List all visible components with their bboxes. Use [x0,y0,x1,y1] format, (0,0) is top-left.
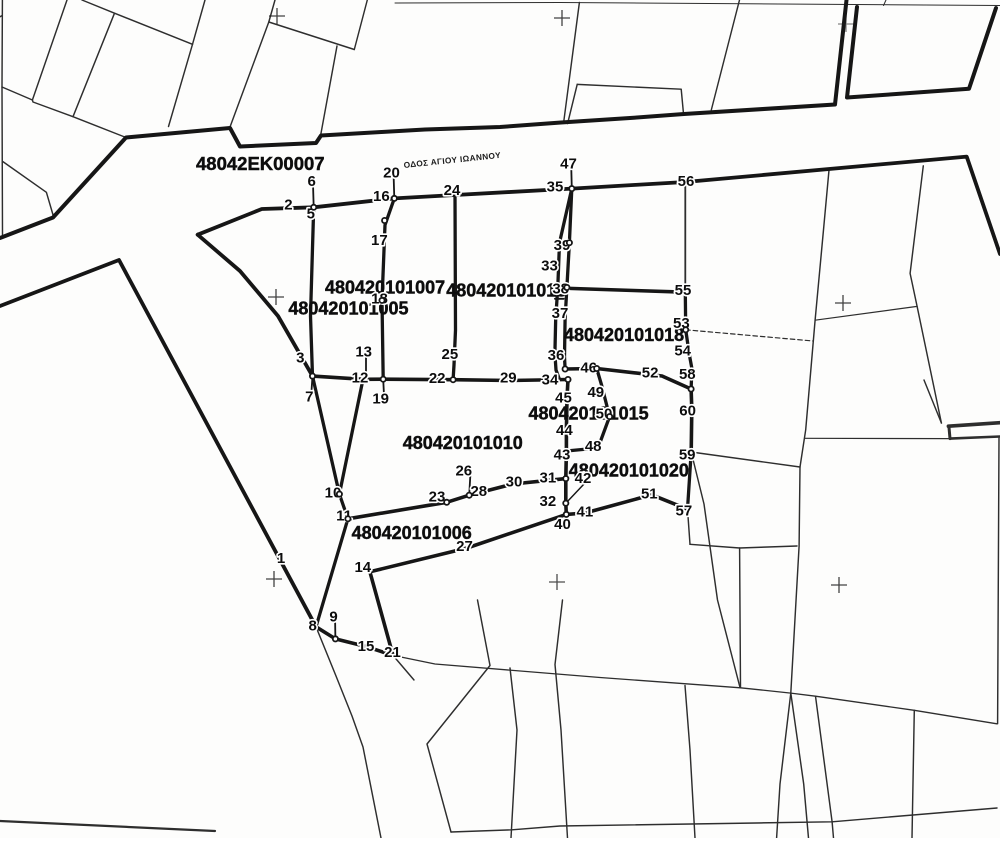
svg-text:3: 3 [296,350,304,367]
svg-text:52: 52 [642,364,659,381]
svg-text:57: 57 [676,502,693,519]
svg-text:9: 9 [329,608,337,625]
svg-text:1: 1 [277,550,285,567]
svg-text:47: 47 [560,156,577,173]
svg-text:480420101015: 480420101015 [529,404,649,424]
svg-text:48: 48 [585,438,602,455]
svg-text:480420101006: 480420101006 [352,523,472,543]
svg-text:480420101018: 480420101018 [564,325,684,345]
svg-text:22: 22 [429,370,446,387]
svg-text:34: 34 [542,371,559,388]
svg-text:32: 32 [540,493,557,510]
svg-text:29: 29 [500,369,517,386]
svg-text:21: 21 [384,644,401,661]
svg-text:43: 43 [554,447,571,464]
svg-text:17: 17 [371,232,388,249]
svg-text:19: 19 [372,391,389,408]
svg-text:41: 41 [577,504,594,521]
svg-text:16: 16 [373,188,390,205]
svg-text:59: 59 [679,447,696,464]
svg-text:24: 24 [444,182,461,199]
svg-text:13: 13 [355,344,372,361]
svg-text:15: 15 [358,638,375,655]
svg-text:36: 36 [548,347,565,364]
svg-text:58: 58 [679,366,696,383]
svg-text:7: 7 [305,388,313,405]
svg-text:480420101010: 480420101010 [403,433,523,453]
svg-text:48042EK00007: 48042EK00007 [196,153,325,174]
svg-text:49: 49 [587,384,604,401]
svg-text:42: 42 [575,470,592,487]
svg-text:33: 33 [541,257,558,274]
svg-text:27: 27 [456,538,473,555]
svg-text:2: 2 [284,197,292,214]
svg-text:30: 30 [506,474,523,491]
svg-text:31: 31 [540,469,557,486]
svg-text:480420101013: 480420101013 [446,281,566,301]
svg-text:35: 35 [547,179,564,196]
svg-text:28: 28 [470,483,487,500]
svg-text:8: 8 [309,618,317,635]
svg-text:40: 40 [554,516,571,533]
svg-text:25: 25 [442,346,459,363]
svg-text:14: 14 [354,559,371,576]
svg-text:56: 56 [678,173,695,190]
svg-text:54: 54 [674,343,691,360]
svg-text:37: 37 [552,305,569,322]
svg-text:55: 55 [675,282,692,299]
svg-text:45: 45 [555,390,572,407]
svg-text:44: 44 [556,422,573,439]
svg-text:20: 20 [383,165,400,182]
svg-text:23: 23 [429,488,446,505]
svg-text:60: 60 [679,403,696,420]
svg-text:6: 6 [308,173,316,190]
svg-text:51: 51 [641,486,658,503]
svg-text:480420101005: 480420101005 [288,299,408,319]
svg-text:26: 26 [455,463,472,480]
svg-text:12: 12 [352,370,369,387]
